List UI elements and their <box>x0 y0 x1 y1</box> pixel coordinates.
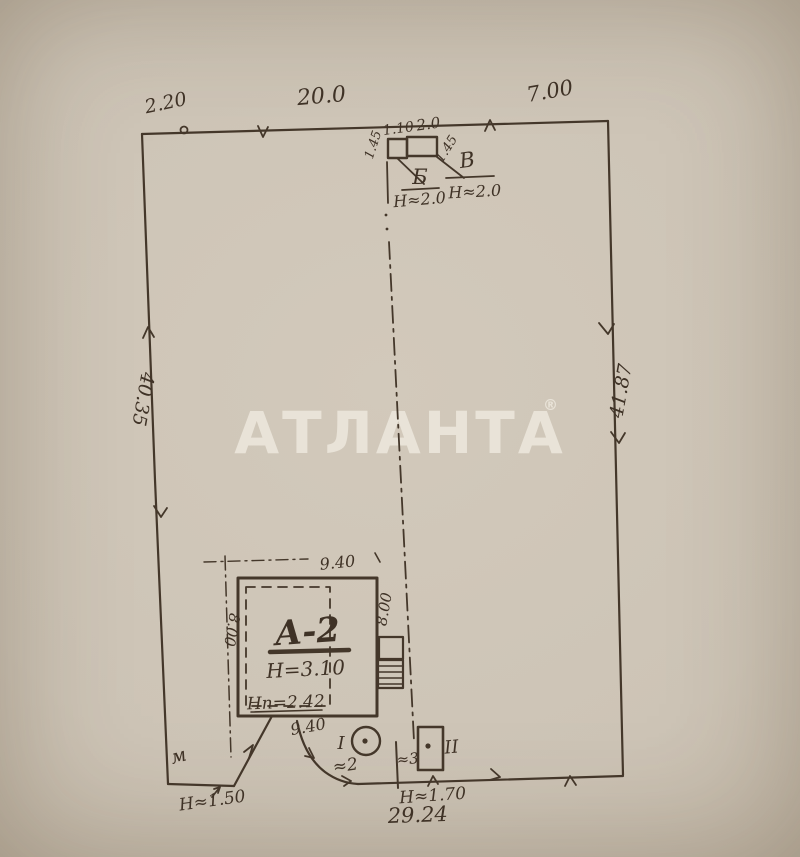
corner-mark: м <box>168 744 189 769</box>
scanned-site-plan: АТЛАНТА ® <box>0 0 800 857</box>
house-stairs <box>378 637 403 688</box>
dim-right-side: 41.87 <box>605 361 636 420</box>
dim-top-mid: 20.0 <box>295 82 347 111</box>
outbuilding-b-label: Б <box>411 165 427 189</box>
shed-label: II <box>443 736 461 758</box>
outbuilding-v-height: Н≈2.0 <box>447 181 502 203</box>
wicket-label: ≈3 <box>396 749 420 769</box>
house-label: А-2 <box>270 610 341 655</box>
house-height: Н=3.10 <box>265 655 346 683</box>
dim-left-side: 40.35 <box>127 369 158 427</box>
gate-label: ≈2 <box>332 754 360 777</box>
well-label: I <box>336 733 345 754</box>
house-basement-note: Нп=2.42 <box>246 692 326 715</box>
dim-outbuilding-b-depth: 1.45 <box>362 129 385 161</box>
shed-rect <box>418 727 443 770</box>
outbuilding-v-label: В <box>457 147 477 173</box>
registered-trademark-icon: ® <box>543 396 558 414</box>
dim-house-bottom: 9.40 <box>289 714 327 739</box>
dim-outbuilding-v-width: 2.0 <box>414 113 442 134</box>
dim-top-right: 7.00 <box>525 75 575 107</box>
dim-house-top: 9.40 <box>319 551 356 574</box>
dim-top-left: 2.20 <box>142 88 189 119</box>
dim-bottom-total: 29.24 <box>386 802 448 828</box>
well-circle <box>352 727 380 755</box>
dim-house-left: 8.00 <box>220 612 244 648</box>
site-plan-drawing: АТЛАНТА ® <box>0 0 800 857</box>
outbuilding-b-height: Н≈2.0 <box>391 188 446 212</box>
fence-height-left: Н≈1.50 <box>177 786 247 815</box>
